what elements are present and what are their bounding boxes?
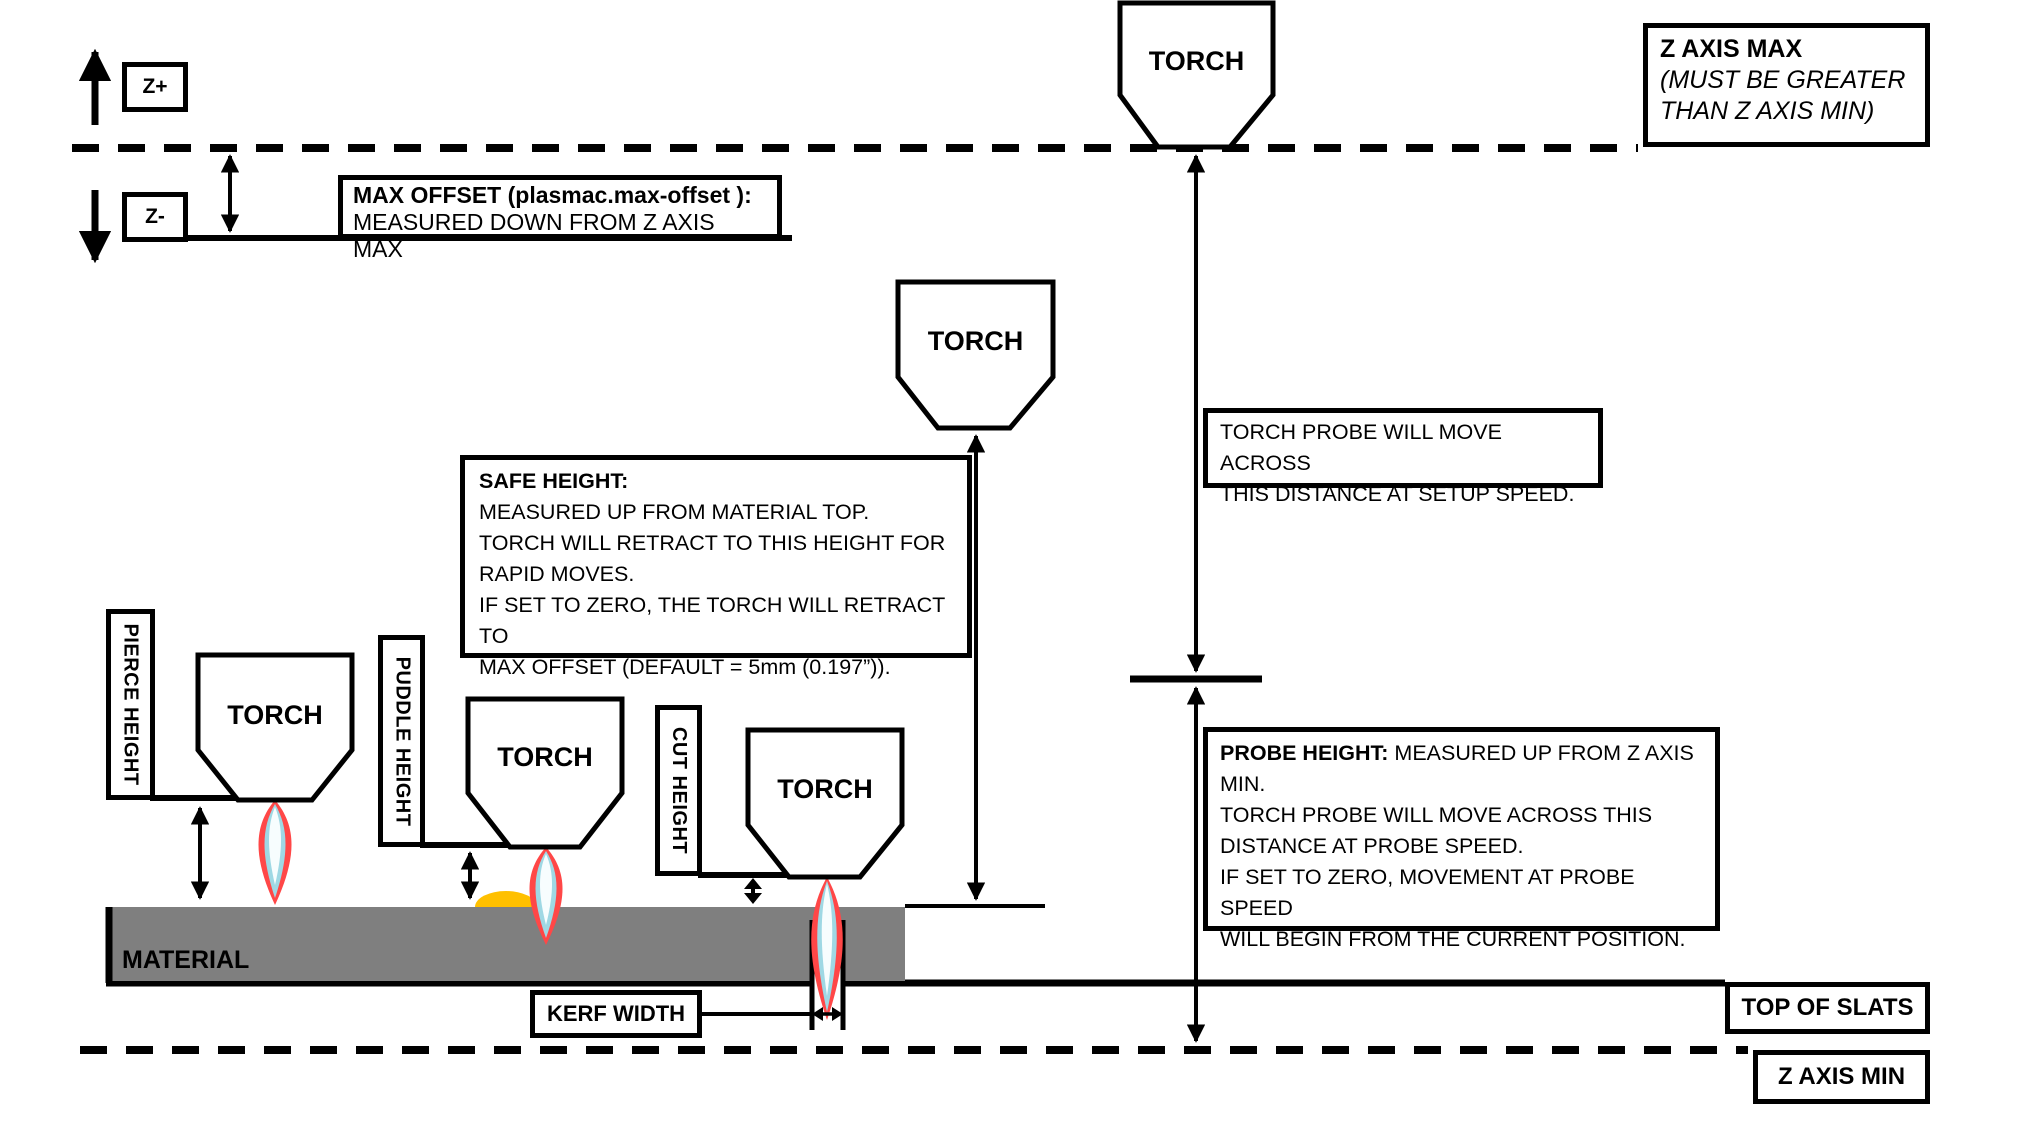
pierce-flame-icon — [259, 800, 292, 905]
z-axis-max-box: Z AXIS MAX (MUST BE GREATER THAN Z AXIS … — [1643, 23, 1930, 147]
z-minus-label: Z- — [145, 205, 165, 229]
torch-label-puddle: TORCH — [468, 742, 622, 773]
max-offset-title: MAX OFFSET (plasmac.max-offset ): — [353, 182, 767, 209]
z-minus-box: Z- — [122, 192, 188, 242]
puddle-height-box: PUDDLE HEIGHT — [378, 635, 425, 847]
probe-height-body: MEASURED UP FROM Z AXIS MIN. TORCH PROBE… — [1220, 741, 1694, 951]
torch-label-pierce: TORCH — [198, 700, 352, 731]
safe-height-box: SAFE HEIGHT: MEASURED UP FROM MATERIAL T… — [460, 455, 972, 658]
z-plus-label: Z+ — [142, 75, 167, 99]
pierce-height-box: PIERCE HEIGHT — [106, 609, 155, 800]
z-axis-min-label: Z AXIS MIN — [1778, 1063, 1905, 1091]
diagram-linework — [0, 0, 2038, 1145]
torch-probe-box: TORCH PROBE WILL MOVE ACROSS THIS DISTAN… — [1203, 408, 1603, 488]
cut-height-label: CUT HEIGHT — [667, 727, 690, 854]
probe-height-text: PROBE HEIGHT: MEASURED UP FROM Z AXIS MI… — [1220, 741, 1694, 951]
max-offset-body: MEASURED DOWN FROM Z AXIS MAX — [353, 209, 767, 263]
max-offset-box: MAX OFFSET (plasmac.max-offset ): MEASUR… — [338, 175, 782, 239]
z-axis-max-title: Z AXIS MAX — [1660, 34, 1913, 65]
torch-probe-text: TORCH PROBE WILL MOVE ACROSS THIS DISTAN… — [1220, 420, 1574, 506]
kerf-width-box: KERF WIDTH — [530, 990, 702, 1038]
torch-label-cut: TORCH — [748, 774, 902, 805]
probe-height-title: PROBE HEIGHT: — [1220, 741, 1388, 765]
top-of-slats-label: TOP OF SLATS — [1741, 994, 1913, 1022]
safe-height-text: MEASURED UP FROM MATERIAL TOP. TORCH WIL… — [479, 500, 945, 679]
safe-height-title: SAFE HEIGHT: — [479, 466, 953, 497]
plasma-height-diagram: Z+ Z- MAX OFFSET (plasmac.max-offset ): … — [0, 0, 2038, 1145]
kerf-width-label: KERF WIDTH — [547, 1001, 685, 1027]
puddle-height-label: PUDDLE HEIGHT — [390, 656, 413, 826]
z-plus-box: Z+ — [122, 62, 188, 112]
pierce-height-label: PIERCE HEIGHT — [119, 623, 142, 785]
cut-height-box: CUT HEIGHT — [655, 705, 702, 876]
torch-label-safe: TORCH — [898, 326, 1053, 357]
top-of-slats-box: TOP OF SLATS — [1725, 982, 1930, 1034]
torch-label-top: TORCH — [1120, 46, 1273, 77]
cut-height-arrow — [744, 878, 762, 904]
z-axis-max-subtitle: (MUST BE GREATER THAN Z AXIS MIN) — [1660, 65, 1913, 127]
z-axis-min-box: Z AXIS MIN — [1753, 1050, 1930, 1104]
material-label: MATERIAL — [122, 946, 249, 975]
torch-shape-puddle — [468, 699, 622, 847]
puddle-icon — [475, 891, 537, 907]
probe-height-box: PROBE HEIGHT: MEASURED UP FROM Z AXIS MI… — [1203, 727, 1720, 931]
